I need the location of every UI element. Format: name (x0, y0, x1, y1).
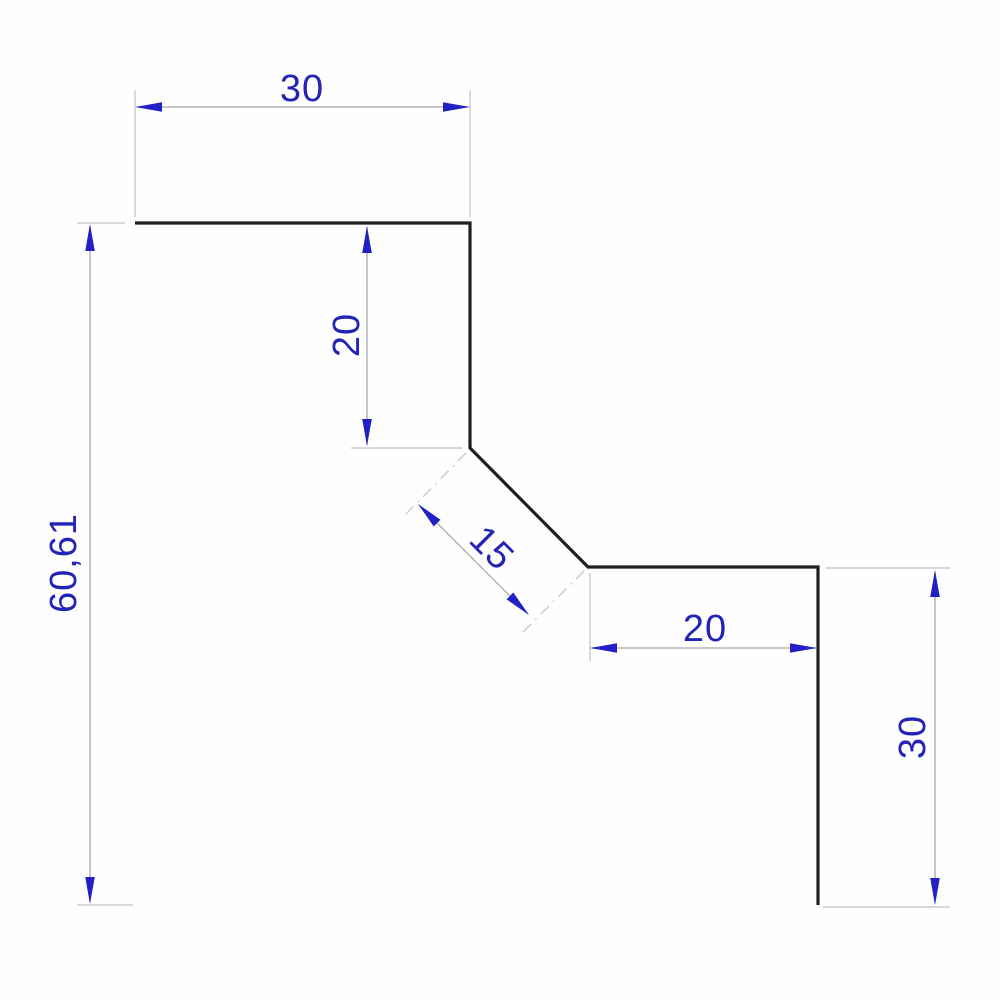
dimension-label-diagonal: 15 (461, 518, 522, 579)
arrowhead-up-icon (362, 226, 372, 253)
arrowhead-downright-icon (507, 593, 533, 619)
extension-line-dashed (406, 453, 466, 514)
dimension-diagonal: 15 (406, 453, 584, 632)
dimension-right-height: 30 (823, 568, 950, 907)
dimension-label-right-height: 30 (892, 715, 934, 759)
profile-outline (135, 223, 818, 905)
dimension-overall-height: 60,61 (43, 223, 133, 905)
extension-line-dashed (523, 571, 584, 632)
arrowhead-right-icon (790, 643, 817, 653)
arrowhead-down-icon (930, 878, 940, 905)
arrowhead-down-icon (362, 419, 372, 446)
arrowhead-right-icon (443, 102, 470, 112)
profile-path (135, 223, 818, 905)
dimension-label-lower-width: 20 (683, 608, 727, 650)
arrowhead-up-icon (85, 224, 95, 251)
dimension-label-upper-height: 20 (326, 313, 368, 357)
arrowhead-up-icon (930, 570, 940, 597)
arrowhead-left-icon (135, 102, 162, 112)
dimension-top-width: 30 (135, 68, 470, 217)
arrowhead-left-icon (590, 643, 617, 653)
arrowhead-upleft-icon (415, 501, 441, 527)
drawing-canvas: 30 60,61 20 15 20 (0, 0, 1000, 1000)
arrowhead-down-icon (85, 877, 95, 904)
dimension-upper-height: 20 (326, 226, 462, 448)
dimension-label-top-width: 30 (280, 68, 324, 110)
dimension-lower-width: 20 (590, 573, 817, 661)
dimension-label-overall-height: 60,61 (43, 513, 85, 613)
technical-drawing: 30 60,61 20 15 20 (0, 0, 1000, 1000)
